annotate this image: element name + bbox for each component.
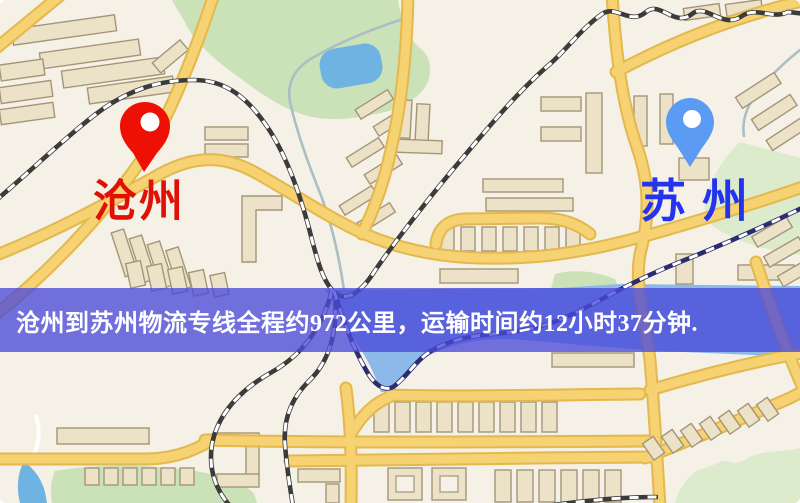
origin-pin-hole (141, 113, 160, 132)
map-screenshot: 沧州 苏州 沧州到苏州物流专线全程约972公里，运输时间约12小时37分钟. (0, 0, 800, 503)
route-info-banner: 沧州到苏州物流专线全程约972公里，运输时间约12小时37分钟. (0, 288, 800, 352)
route-info-text: 沧州到苏州物流专线全程约972公里，运输时间约12小时37分钟. (16, 309, 698, 337)
destination-pin-hole (683, 110, 701, 128)
map-canvas: 沧州 苏州 沧州到苏州物流专线全程约972公里，运输时间约12小时37分钟. (0, 0, 800, 503)
destination-city-label: 苏州 (640, 176, 764, 227)
origin-city-label: 沧州 (93, 177, 185, 226)
